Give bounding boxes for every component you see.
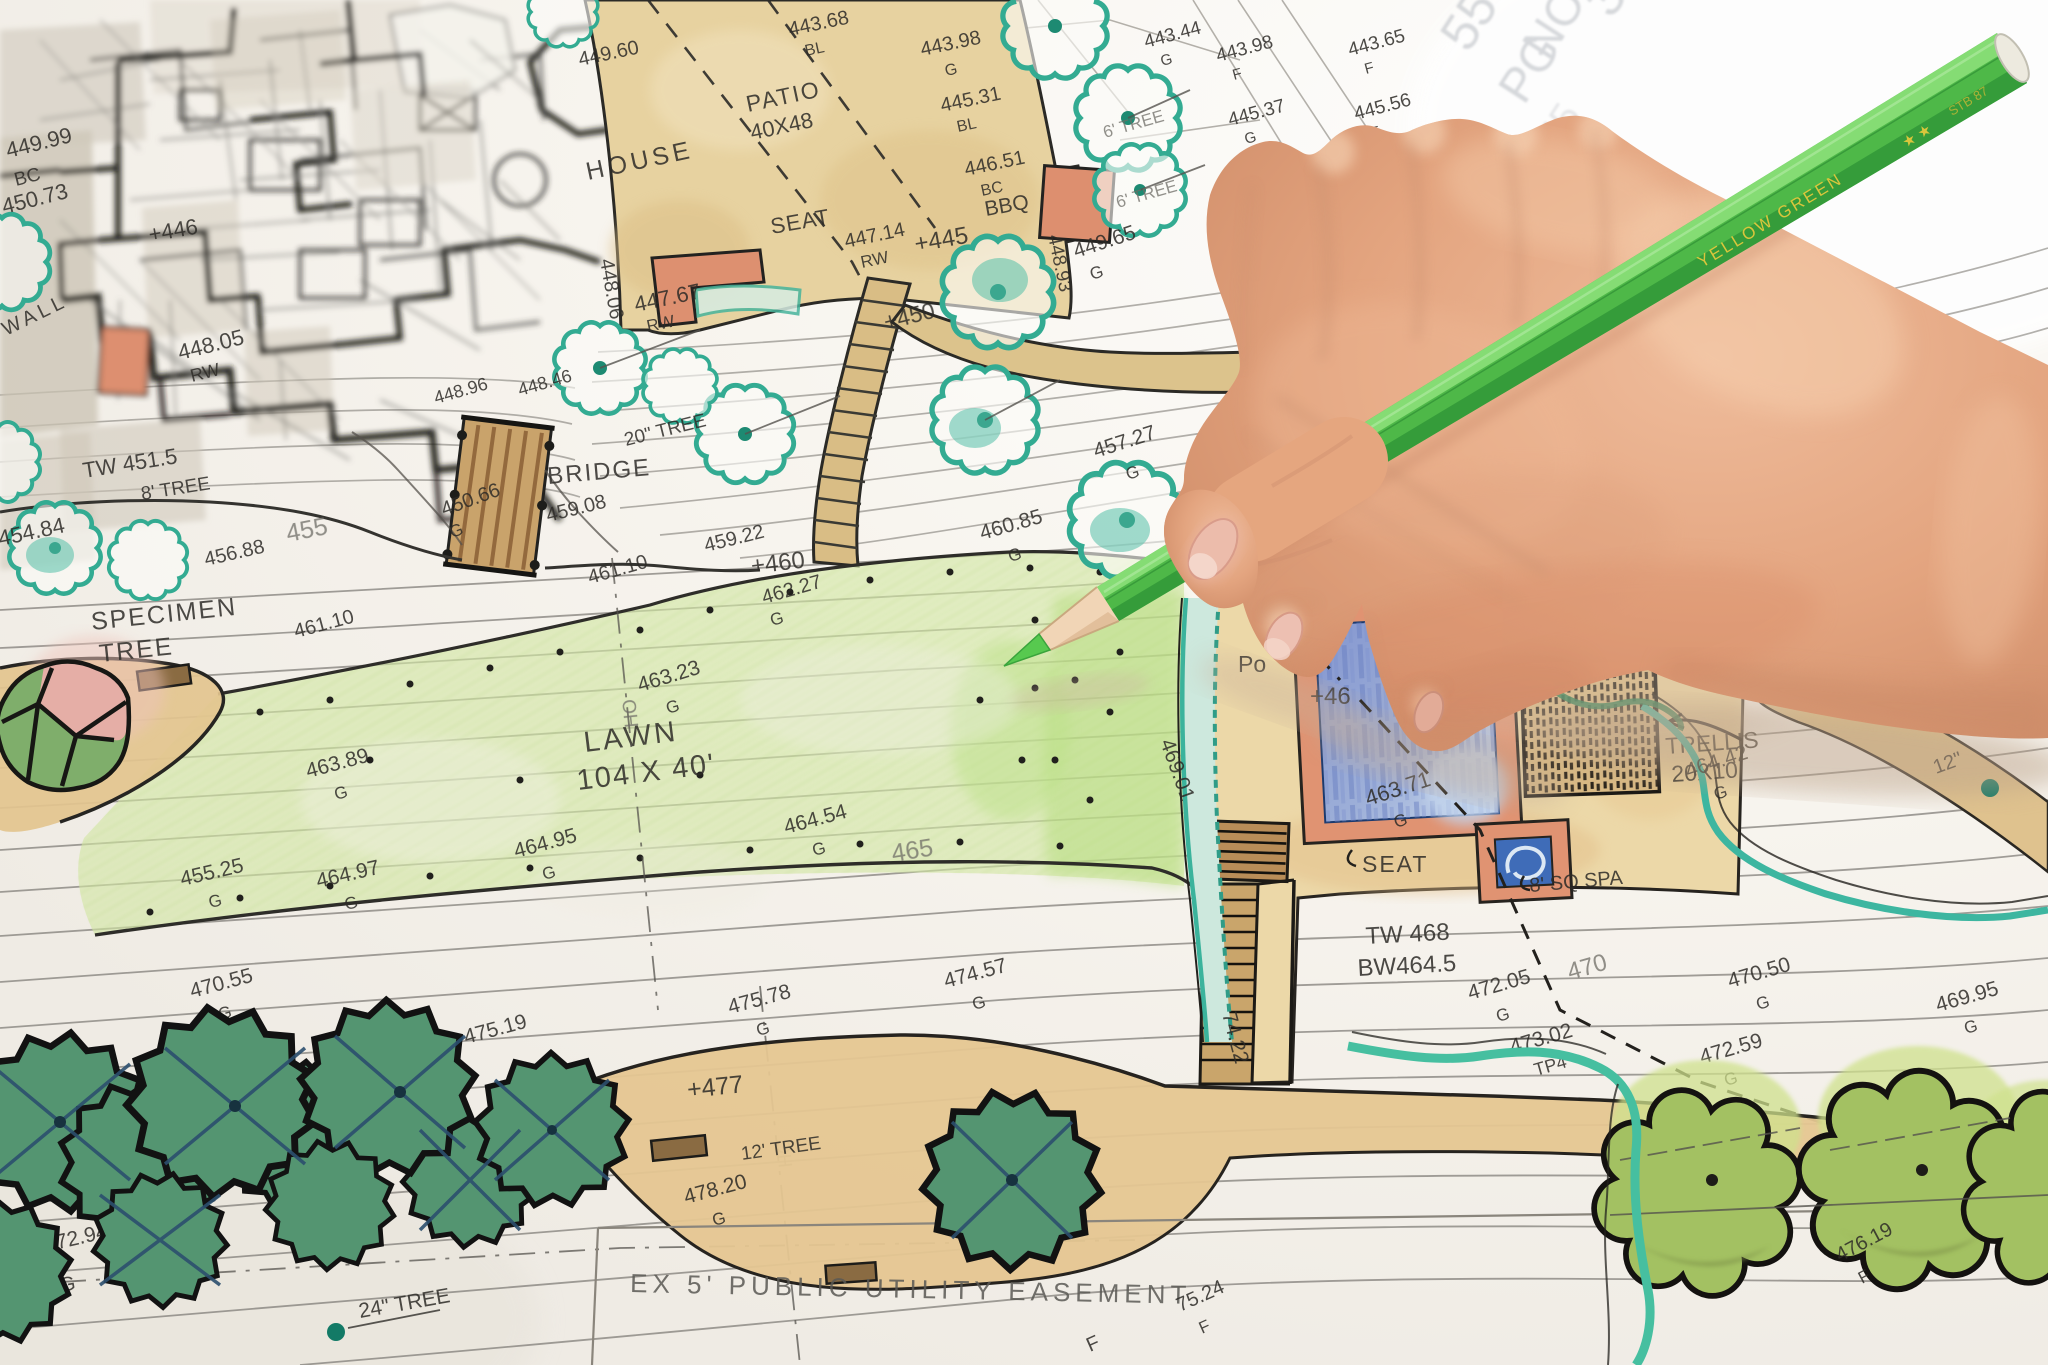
svg-text:TW 468: TW 468 — [1365, 919, 1450, 950]
svg-text:+477: +477 — [686, 1070, 745, 1104]
svg-text:OH: OH — [617, 698, 641, 729]
svg-text:BW464.5: BW464.5 — [1357, 950, 1457, 982]
svg-text:SEAT: SEAT — [1362, 851, 1428, 877]
